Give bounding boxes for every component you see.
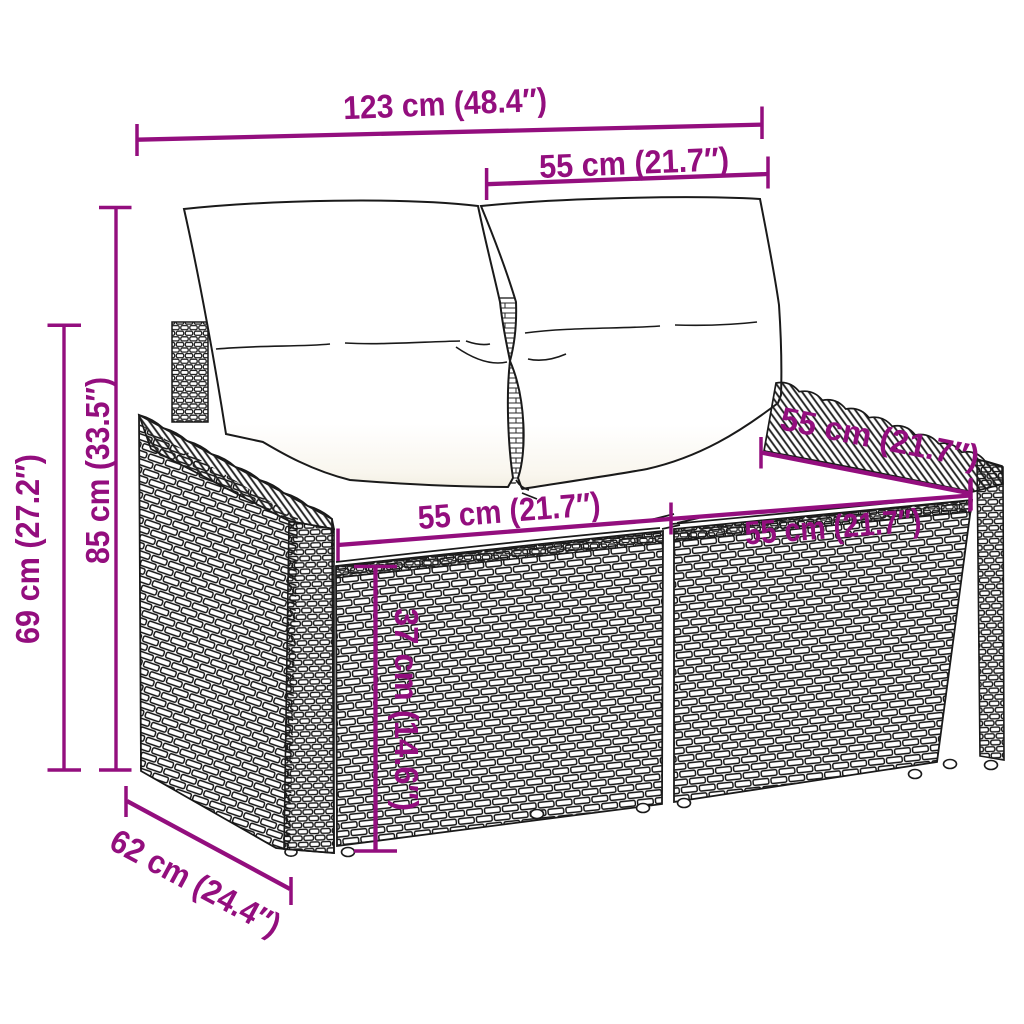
svg-text:85 cm (33.5″): 85 cm (33.5″): [79, 377, 116, 564]
svg-text:123 cm (48.4″): 123 cm (48.4″): [342, 81, 547, 127]
svg-text:37 cm (14.6″): 37 cm (14.6″): [388, 608, 425, 811]
svg-text:69 cm (27.2″): 69 cm (27.2″): [9, 454, 46, 644]
